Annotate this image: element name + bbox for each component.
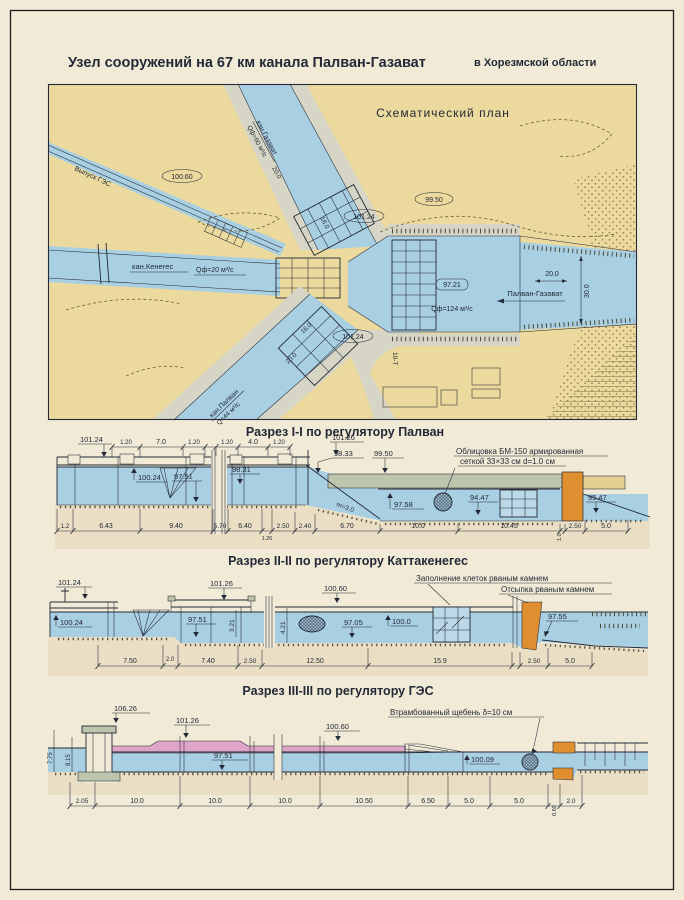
svg-text:8.15: 8.15 <box>66 754 72 766</box>
svg-text:101.26: 101.26 <box>332 433 355 442</box>
svg-text:95.47: 95.47 <box>588 493 607 502</box>
svg-text:10-Т: 10-Т <box>391 352 398 365</box>
svg-text:10.50: 10.50 <box>355 798 373 805</box>
svg-text:101.26: 101.26 <box>210 579 233 588</box>
svg-text:94.47: 94.47 <box>470 493 489 502</box>
section3-title: Разрез III-III по регулятору ГЭС <box>242 684 433 698</box>
svg-text:100.60: 100.60 <box>324 584 347 593</box>
svg-text:1.0: 1.0 <box>557 533 563 541</box>
svg-text:9.40: 9.40 <box>169 523 183 530</box>
svg-text:0.60: 0.60 <box>552 805 558 816</box>
svg-text:Отсыпка рваным камнем: Отсыпка рваным камнем <box>501 585 594 594</box>
svg-text:101.26: 101.26 <box>176 716 199 725</box>
road-label: 10-Т <box>391 352 398 365</box>
svg-text:2.50: 2.50 <box>528 658 541 665</box>
svg-text:2.0: 2.0 <box>166 657 175 663</box>
svg-text:5.0: 5.0 <box>464 798 474 805</box>
svg-text:1.20: 1.20 <box>262 536 273 542</box>
svg-text:5.0: 5.0 <box>514 798 524 805</box>
schematic-plan: Схематический план 100.60 99.50 101.24 1… <box>48 84 637 428</box>
s1-stilling-gate <box>500 490 537 517</box>
svg-text:7.50: 7.50 <box>123 658 137 665</box>
s1-orange-wall <box>562 472 583 521</box>
svg-text:4.0: 4.0 <box>248 439 258 446</box>
svg-text:97.51: 97.51 <box>188 615 207 624</box>
svg-text:98.31: 98.31 <box>232 465 251 474</box>
svg-text:100.24: 100.24 <box>138 473 161 482</box>
svg-text:12.50: 12.50 <box>306 658 324 665</box>
svg-text:3.21: 3.21 <box>229 619 236 632</box>
svg-text:6.50: 6.50 <box>421 798 435 805</box>
page-title: Узел сооружений на 67 км канала Палван-Г… <box>68 55 426 71</box>
svg-text:101.24: 101.24 <box>58 578 81 587</box>
svg-text:1.20: 1.20 <box>188 440 200 446</box>
svg-text:100.24: 100.24 <box>60 618 83 627</box>
s3-orange-bottom <box>553 768 573 780</box>
s1-lining-callout-circle <box>434 493 452 511</box>
svg-text:2.0: 2.0 <box>566 798 575 805</box>
s2-rock-cells <box>433 607 470 642</box>
svg-text:сеткой 33×33 см d=1.0 см: сеткой 33×33 см d=1.0 см <box>460 457 555 466</box>
svg-text:106.26: 106.26 <box>114 704 137 713</box>
svg-text:7.40: 7.40 <box>201 658 215 665</box>
svg-text:97.51: 97.51 <box>214 751 233 760</box>
svg-text:Qф=124 м³/с: Qф=124 м³/с <box>431 306 473 313</box>
s3-gravel-circle <box>522 754 538 770</box>
svg-text:100.09: 100.09 <box>471 755 494 764</box>
s2-post-left <box>168 596 175 601</box>
s1-lining <box>328 474 562 488</box>
svg-text:97.05: 97.05 <box>344 618 363 627</box>
svg-text:20.0: 20.0 <box>545 271 559 278</box>
svg-text:97.51: 97.51 <box>174 472 193 481</box>
s1-joint-gap <box>211 450 227 534</box>
svg-text:1.2: 1.2 <box>61 524 70 530</box>
s1-bank-block <box>583 476 625 489</box>
svg-text:99.50: 99.50 <box>374 449 393 458</box>
svg-text:10.45: 10.45 <box>500 523 518 530</box>
svg-text:15.9: 15.9 <box>433 658 447 665</box>
svg-text:97.55: 97.55 <box>548 612 567 621</box>
svg-text:6.40: 6.40 <box>238 523 252 530</box>
svg-text:Палван-Газават: Палван-Газават <box>507 289 563 298</box>
svg-text:2.40: 2.40 <box>299 523 312 530</box>
svg-text:10.0: 10.0 <box>208 798 222 805</box>
svg-text:98.33: 98.33 <box>334 449 353 458</box>
svg-text:100.0: 100.0 <box>392 617 411 626</box>
svg-text:7.0: 7.0 <box>156 439 166 446</box>
s2-joint-gap <box>264 596 275 648</box>
svg-text:101.24: 101.24 <box>353 214 375 221</box>
svg-text:97.21: 97.21 <box>443 282 461 289</box>
svg-text:4.21: 4.21 <box>280 621 287 634</box>
s2-post-right <box>248 596 255 601</box>
svg-text:100.60: 100.60 <box>171 174 193 181</box>
svg-text:2.50: 2.50 <box>277 523 290 530</box>
svg-text:5.0: 5.0 <box>601 523 611 530</box>
svg-text:10.0: 10.0 <box>130 798 144 805</box>
svg-text:10.0: 10.0 <box>411 523 425 530</box>
s2-gabion <box>299 616 325 632</box>
s3-orange-top <box>553 742 575 753</box>
svg-text:2.50: 2.50 <box>244 658 257 665</box>
svg-text:1.20: 1.20 <box>273 440 285 446</box>
section2-title: Разрез II-II по регулятору Каттакенегес <box>228 554 468 568</box>
svg-text:10.0: 10.0 <box>278 798 292 805</box>
svg-text:2.50: 2.50 <box>569 523 582 530</box>
svg-text:99.50: 99.50 <box>425 197 443 204</box>
svg-text:6.70: 6.70 <box>340 523 354 530</box>
svg-text:Втрамбованный щебень δ=10 см: Втрамбованный щебень δ=10 см <box>390 708 512 717</box>
svg-text:Заполнение клеток рваным камне: Заполнение клеток рваным камнем <box>416 574 548 583</box>
svg-text:Облицовка БМ-150 армированная: Облицовка БМ-150 армированная <box>456 447 583 456</box>
svg-text:100.60: 100.60 <box>326 722 349 731</box>
svg-text:1.20: 1.20 <box>120 440 132 446</box>
svg-text:5.70: 5.70 <box>214 523 227 530</box>
svg-text:101.24: 101.24 <box>342 334 364 341</box>
s3-break-gap <box>274 734 282 780</box>
svg-text:97.58: 97.58 <box>394 500 413 509</box>
svg-text:6.43: 6.43 <box>99 523 113 530</box>
map-title: Схематический план <box>376 106 510 120</box>
drawing-svg: Узел сооружений на 67 км канала Палван-Г… <box>0 0 684 900</box>
drawing-sheet: Узел сооружений на 67 км канала Палван-Г… <box>0 0 684 900</box>
svg-text:кан.Кенегес: кан.Кенегес <box>132 262 173 271</box>
main-canal-earth <box>520 242 637 330</box>
svg-text:Qф=20 м³/с: Qф=20 м³/с <box>196 267 234 274</box>
page-title-region: в Хорезмской области <box>474 57 596 69</box>
svg-text:30.0: 30.0 <box>584 284 591 298</box>
svg-text:1.20: 1.20 <box>221 440 233 446</box>
svg-text:7.75: 7.75 <box>48 752 54 764</box>
svg-text:5.0: 5.0 <box>565 658 575 665</box>
svg-text:101.24: 101.24 <box>80 435 103 444</box>
svg-text:2.05: 2.05 <box>76 798 89 805</box>
